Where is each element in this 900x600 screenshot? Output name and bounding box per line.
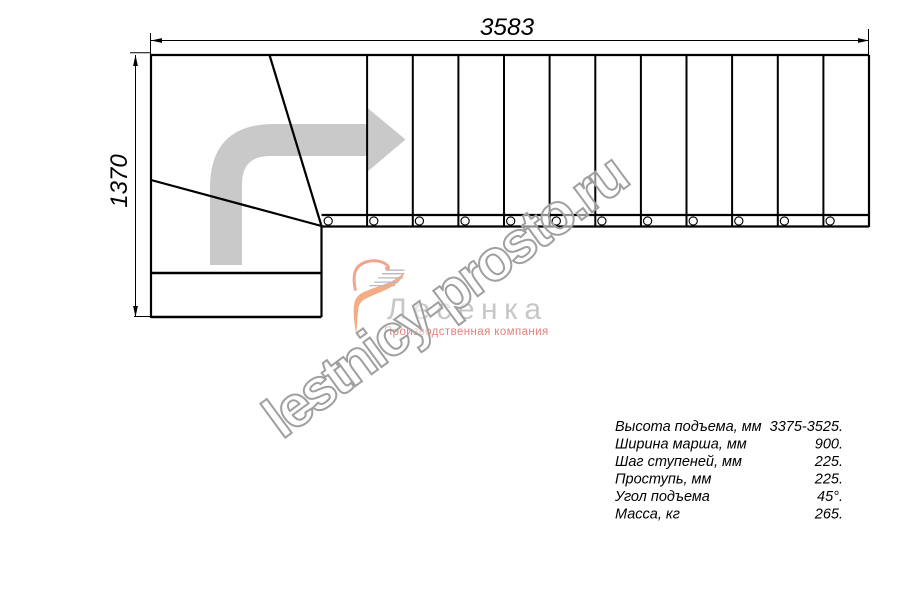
- svg-text:225.: 225.: [814, 472, 843, 488]
- svg-text:Угол подъема: Угол подъема: [614, 489, 710, 505]
- svg-text:900.: 900.: [815, 437, 843, 453]
- svg-text:Шаг ступеней, мм: Шаг ступеней, мм: [615, 454, 742, 470]
- svg-text:1370: 1370: [106, 154, 133, 208]
- svg-text:265.: 265.: [814, 507, 843, 523]
- svg-text:225.: 225.: [814, 454, 843, 470]
- svg-text:Высота подъема, мм: Высота подъема, мм: [615, 419, 762, 435]
- svg-text:Ширина марша, мм: Ширина марша, мм: [615, 437, 747, 453]
- svg-text:45°.: 45°.: [817, 489, 843, 505]
- svg-text:3583: 3583: [480, 14, 535, 41]
- svg-text:Масса, кг: Масса, кг: [615, 507, 680, 523]
- svg-text:Проступь, мм: Проступь, мм: [615, 472, 711, 488]
- svg-text:3375-3525.: 3375-3525.: [770, 419, 843, 435]
